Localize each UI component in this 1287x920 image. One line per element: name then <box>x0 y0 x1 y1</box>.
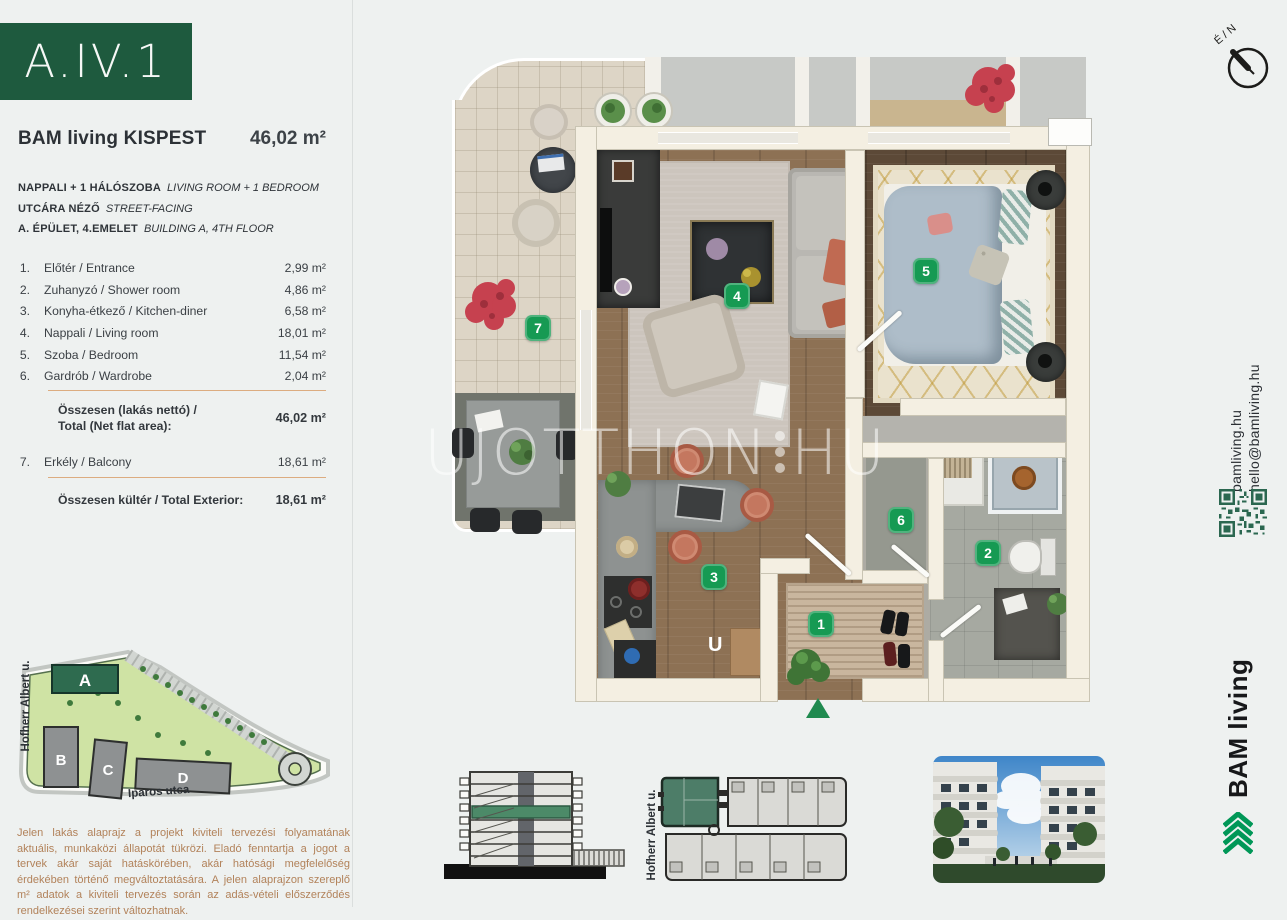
unit-id: A.IV.1 <box>24 35 168 88</box>
total-net-label-en: Total (Net flat area): <box>58 418 197 434</box>
shaft-box <box>1048 118 1092 146</box>
balcony-glass-door <box>658 132 798 144</box>
subtitle-rooms: NAPPALI + 1 HÁLÓSZOBALIVING ROOM + 1 BED… <box>18 178 348 199</box>
wall-entrance-left <box>760 572 778 702</box>
laptop <box>537 154 565 173</box>
exterior-jamb <box>856 57 870 128</box>
bed-accent <box>926 212 953 236</box>
red-pot <box>628 578 650 600</box>
total-net-row: Összesen (lakás nettó) / Total (Net flat… <box>58 402 326 434</box>
bedroom-window <box>868 132 1010 144</box>
website-url: bamliving.hu <box>1228 322 1244 492</box>
burner <box>610 596 622 608</box>
key-plan <box>654 770 850 886</box>
contact-block: bamliving.hu hello@bamliving.hu <box>1225 322 1265 492</box>
nightstand-lamp <box>1038 182 1052 196</box>
toilet-bowl <box>1008 540 1042 574</box>
terrace-chair <box>512 510 542 534</box>
wall-top <box>575 126 1090 150</box>
total-net-area: 46,02 m² <box>276 411 326 425</box>
wall-bottom-right <box>862 678 1090 702</box>
wall-bedroom-bottom <box>900 398 1066 416</box>
burner <box>630 606 642 618</box>
room-badge-4: 4 <box>724 283 750 309</box>
wall-bath-left-upper <box>928 458 944 600</box>
decor-ball <box>706 238 728 260</box>
brand-block: BAM living <box>1215 624 1261 854</box>
exterior-jamb <box>795 57 809 128</box>
balcony-plant-red <box>958 55 1024 121</box>
street-label-hofherr: Hofherr Albert u. <box>20 646 32 766</box>
wall-right <box>1066 126 1090 702</box>
total-ext-area: 18,61 m² <box>276 493 326 507</box>
wall-wardrobe-bottom <box>862 570 928 584</box>
divider <box>48 390 326 391</box>
bed-pillow <box>999 299 1034 356</box>
site-building-a: A <box>79 671 91 690</box>
compass-icon: É / N <box>1206 24 1276 94</box>
room-badge-7: 7 <box>525 315 551 341</box>
table-row: 1.Előtér / Entrance2,99 m² <box>18 257 326 279</box>
subtitle-floor: A. ÉPÜLET, 4.EMELETBUILDING A, 4TH FLOOR <box>18 219 348 240</box>
table-row: 5.Szoba / Bedroom11,54 m² <box>18 344 326 366</box>
email-address: hello@bamliving.hu <box>1246 322 1262 492</box>
decor-letter: U <box>708 634 722 657</box>
room-badge-3: 3 <box>701 564 727 590</box>
legal-disclaimer: Jelen lakás alaprajz a projekt kiviteli … <box>17 826 350 920</box>
wall-living-bedroom <box>845 150 865 398</box>
watermark-part1: UJOTTHON <box>424 416 769 489</box>
divider <box>48 477 326 478</box>
vase <box>614 278 632 296</box>
room-badge-2: 2 <box>975 540 1001 566</box>
watermark-part2: HU <box>791 416 887 489</box>
room-badge-1: 1 <box>808 611 834 637</box>
project-name: BAM living KISPEST <box>18 128 206 150</box>
table-row: 2.Zuhanyzó / Shower room4,86 m² <box>18 279 326 301</box>
shoes <box>883 641 897 666</box>
balcony-armchair <box>512 199 560 247</box>
subtitle-facing: UTCÁRA NÉZŐSTREET-FACING <box>18 199 348 220</box>
unit-id-box: A.IV.1 <box>0 23 192 100</box>
room-badge-5: 5 <box>913 258 939 284</box>
table-row: 6.Gardrób / Wardrobe2,04 m² <box>18 365 326 387</box>
wall-bath-left-lower <box>928 640 944 702</box>
total-net-label-hu: Összesen (lakás nettó) / <box>58 402 197 418</box>
balcony-stool <box>530 104 568 140</box>
terrace-chair <box>470 508 500 532</box>
site-building-c: C <box>103 762 114 779</box>
watermark: UJOTTHON HU <box>424 410 894 494</box>
tv-screen <box>600 208 612 292</box>
bam-chevrons-icon <box>1223 812 1253 854</box>
building-photo <box>933 756 1105 883</box>
wall-entrance-top <box>760 558 810 574</box>
total-ext-label: Összesen kültér / Total Exterior: <box>58 493 243 507</box>
table-row: 4.Nappali / Living room18,01 m² <box>18 322 326 344</box>
sofa-cushion <box>796 176 850 250</box>
shoes <box>898 644 910 668</box>
towel-basket <box>944 456 972 478</box>
toilet-tank <box>1040 538 1056 576</box>
site-building-b: B <box>56 752 67 769</box>
shower-head <box>1012 466 1036 490</box>
entry-arrow <box>804 696 832 720</box>
entrance-plant <box>782 638 834 694</box>
blue-bowl <box>624 648 640 664</box>
unit-subtitles: NAPPALI + 1 HÁLÓSZOBALIVING ROOM + 1 BED… <box>18 178 348 240</box>
project-header: BAM living KISPEST 46,02 m² <box>18 128 326 150</box>
tv-decor <box>612 160 634 182</box>
table-row: 3.Konyha-étkező / Kitchen-diner6,58 m² <box>18 300 326 322</box>
room-badge-6: 6 <box>888 507 914 533</box>
nightstand-lamp <box>1038 354 1052 368</box>
compass-label: É / N <box>1212 24 1239 47</box>
qr-code <box>1219 489 1267 537</box>
brand-name: BAM living <box>1223 659 1254 798</box>
plate <box>616 536 638 558</box>
project-total-area: 46,02 m² <box>250 128 326 150</box>
balcony-plant-red <box>458 270 524 336</box>
room-schedule: 1.Előtér / Entrance2,99 m² 2.Zuhanyzó / … <box>18 257 326 387</box>
watermark-dots <box>775 431 785 473</box>
dining-chair <box>668 530 702 564</box>
balcony-row: 7.Erkély / Balcony18,61 m² <box>18 451 326 473</box>
panel-divider <box>352 0 353 907</box>
cutting-board <box>730 628 762 676</box>
total-exterior-row: Összesen kültér / Total Exterior: 18,61 … <box>58 493 326 507</box>
wall-bottom-left <box>575 678 778 702</box>
